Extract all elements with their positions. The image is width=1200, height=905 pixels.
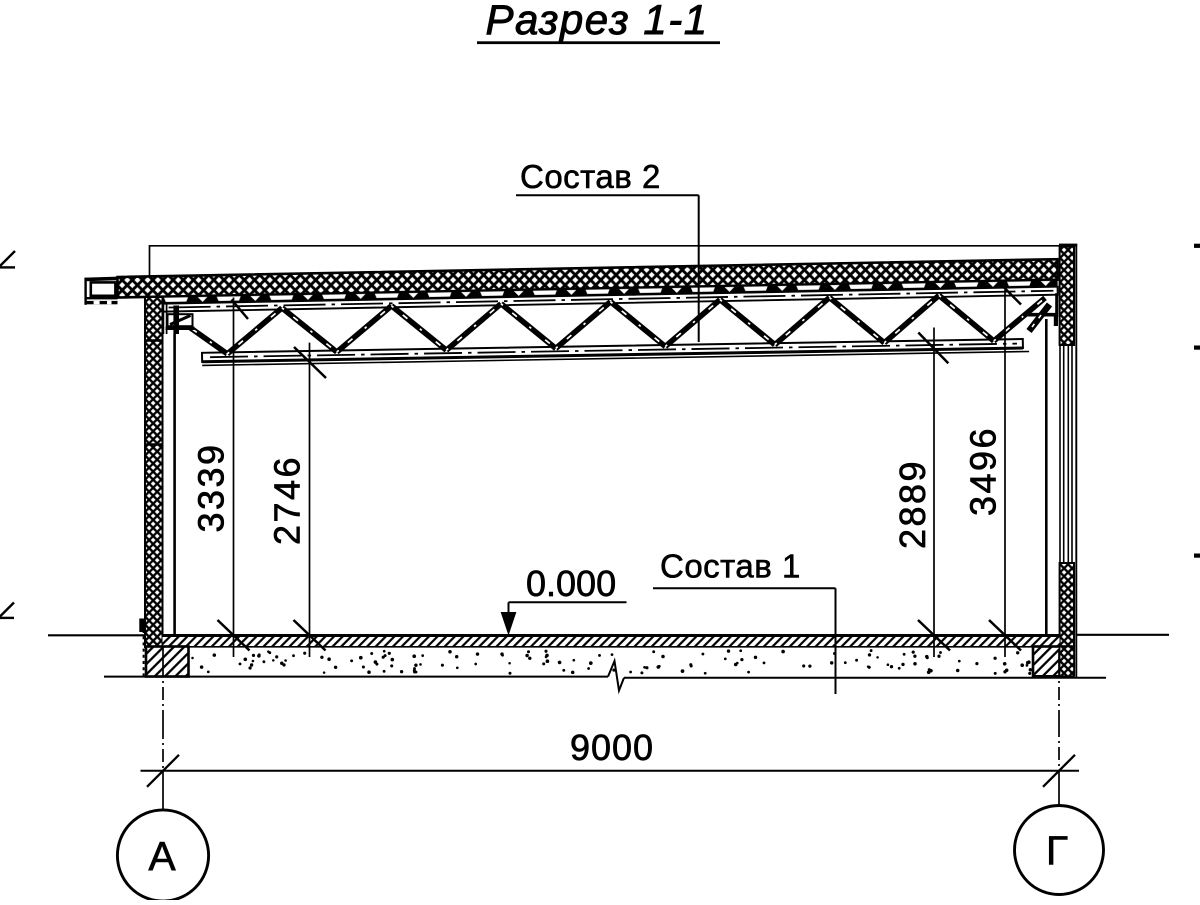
svg-text:9000: 9000 [570,727,654,768]
svg-text:Г: Г [1046,828,1068,874]
svg-text:А: А [148,833,176,879]
svg-text:Состав 2: Состав 2 [520,158,661,195]
svg-text:Состав 1: Состав 1 [660,548,801,585]
svg-text:0.000: 0.000 [526,563,616,604]
svg-text:3496: 3496 [963,426,1004,516]
svg-text:Разрез 1-1: Разрез 1-1 [485,0,708,43]
svg-text:2746: 2746 [267,455,308,545]
svg-text:3339: 3339 [191,442,232,532]
svg-text:2889: 2889 [892,459,933,549]
